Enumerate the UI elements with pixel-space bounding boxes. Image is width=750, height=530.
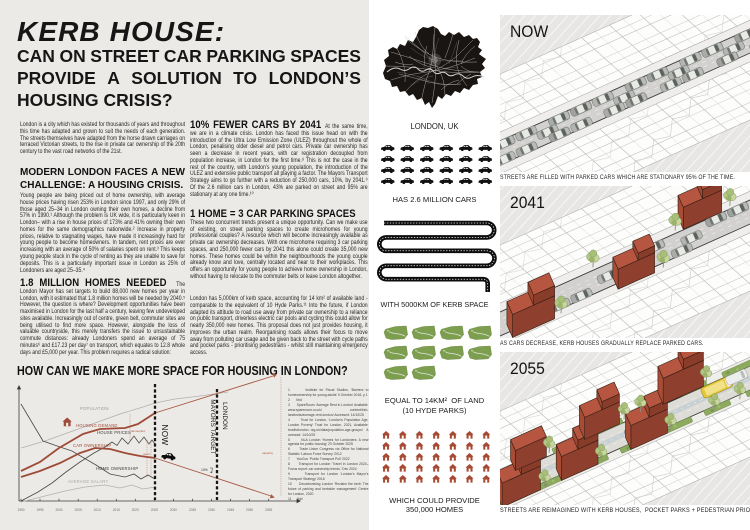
svg-text:2045: 2045 (227, 508, 234, 512)
svg-text:2020: 2020 (132, 508, 139, 512)
svg-text:LONDON: LONDON (221, 402, 228, 430)
svg-text:MAYORS TARGET: MAYORS TARGET (209, 399, 216, 454)
svg-text:POPULATION: POPULATION (80, 406, 109, 411)
svg-text:2030: 2030 (170, 508, 177, 512)
svg-text:2050: 2050 (246, 508, 253, 512)
svg-text:2000: 2000 (55, 508, 62, 512)
svg-text:capacity: capacity (262, 451, 274, 455)
svg-text:NOW: NOW (160, 425, 169, 446)
svg-text:need: need (143, 452, 150, 456)
svg-text:2055: 2055 (265, 508, 272, 512)
svg-text:AVERAGE SALARY: AVERAGE SALARY (68, 479, 108, 484)
svg-text:decoupled: decoupled (131, 429, 145, 433)
svg-text:2040: 2040 (208, 508, 215, 512)
svg-text:1995: 1995 (36, 508, 43, 512)
svg-text:2010: 2010 (94, 508, 101, 512)
svg-text:CAR OWNERSHIP: CAR OWNERSHIP (73, 443, 111, 448)
svg-text:2025: 2025 (151, 508, 158, 512)
svg-text:2005: 2005 (75, 508, 82, 512)
svg-text:HOUSE PRICES: HOUSE PRICES (97, 430, 131, 435)
svg-text:HOME OWNERSHIP: HOME OWNERSHIP (96, 466, 138, 471)
svg-text:HOUSING DEMAND: HOUSING DEMAND (76, 423, 118, 428)
svg-text:10%: 10% (201, 468, 208, 472)
svg-text:1990: 1990 (17, 508, 24, 512)
svg-text:2035: 2035 (189, 508, 196, 512)
svg-text:2015: 2015 (113, 508, 120, 512)
